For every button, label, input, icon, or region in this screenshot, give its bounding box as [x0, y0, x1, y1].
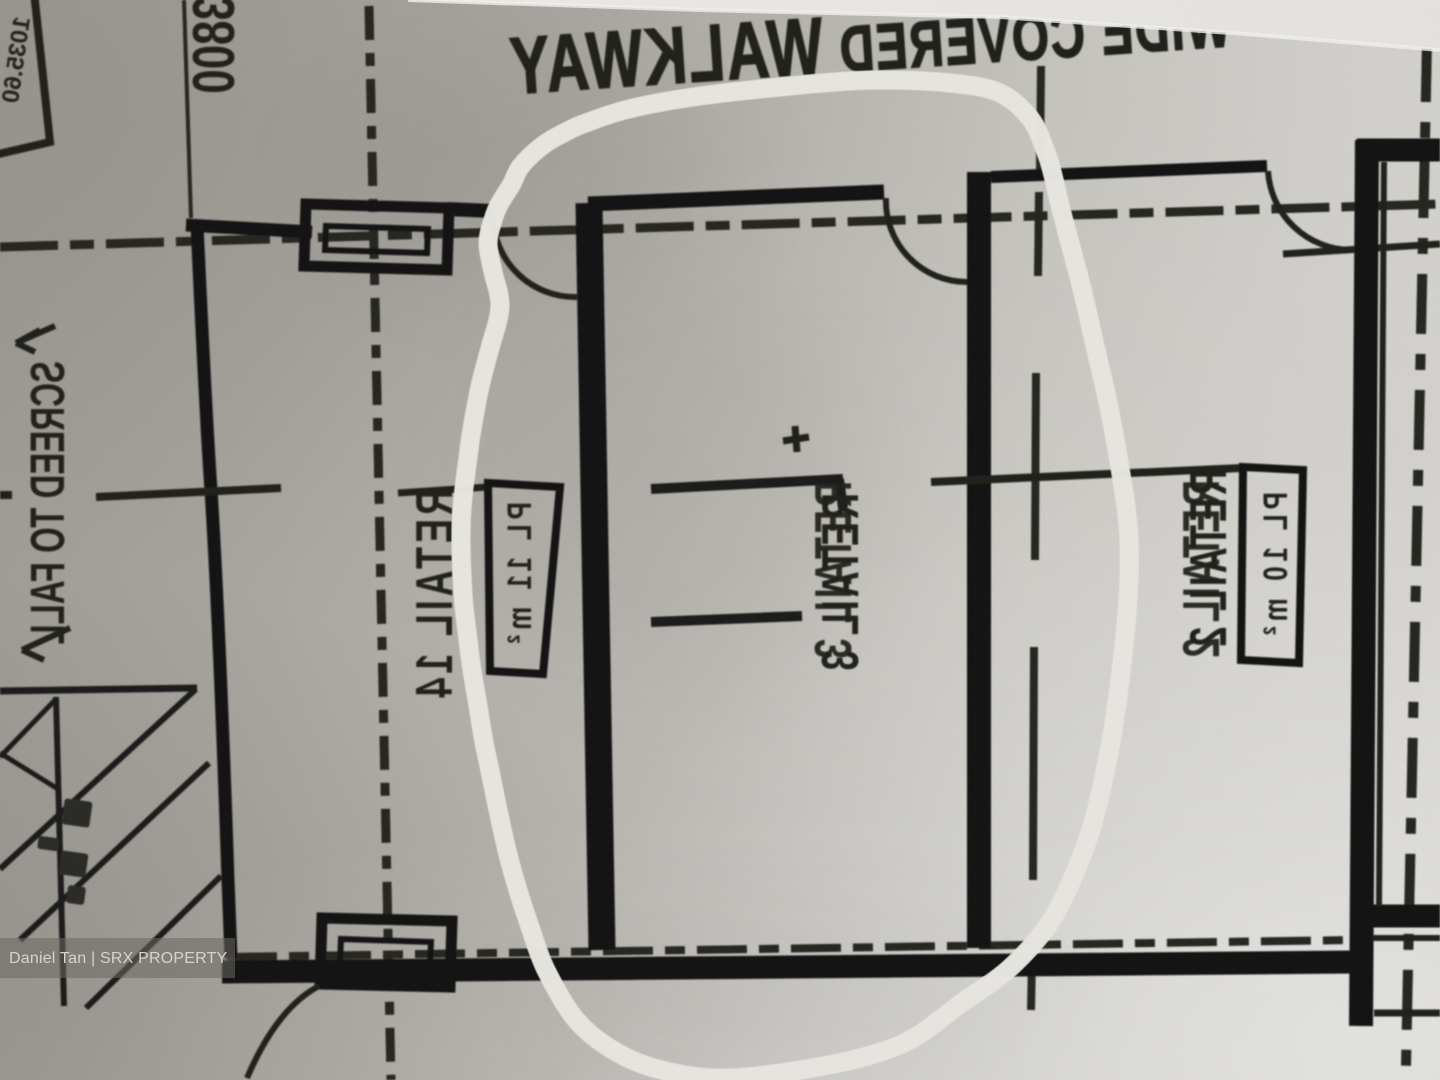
svg-text:Daniel Tan | SRX PROPERTY: Daniel Tan | SRX PROPERTY	[9, 950, 228, 967]
